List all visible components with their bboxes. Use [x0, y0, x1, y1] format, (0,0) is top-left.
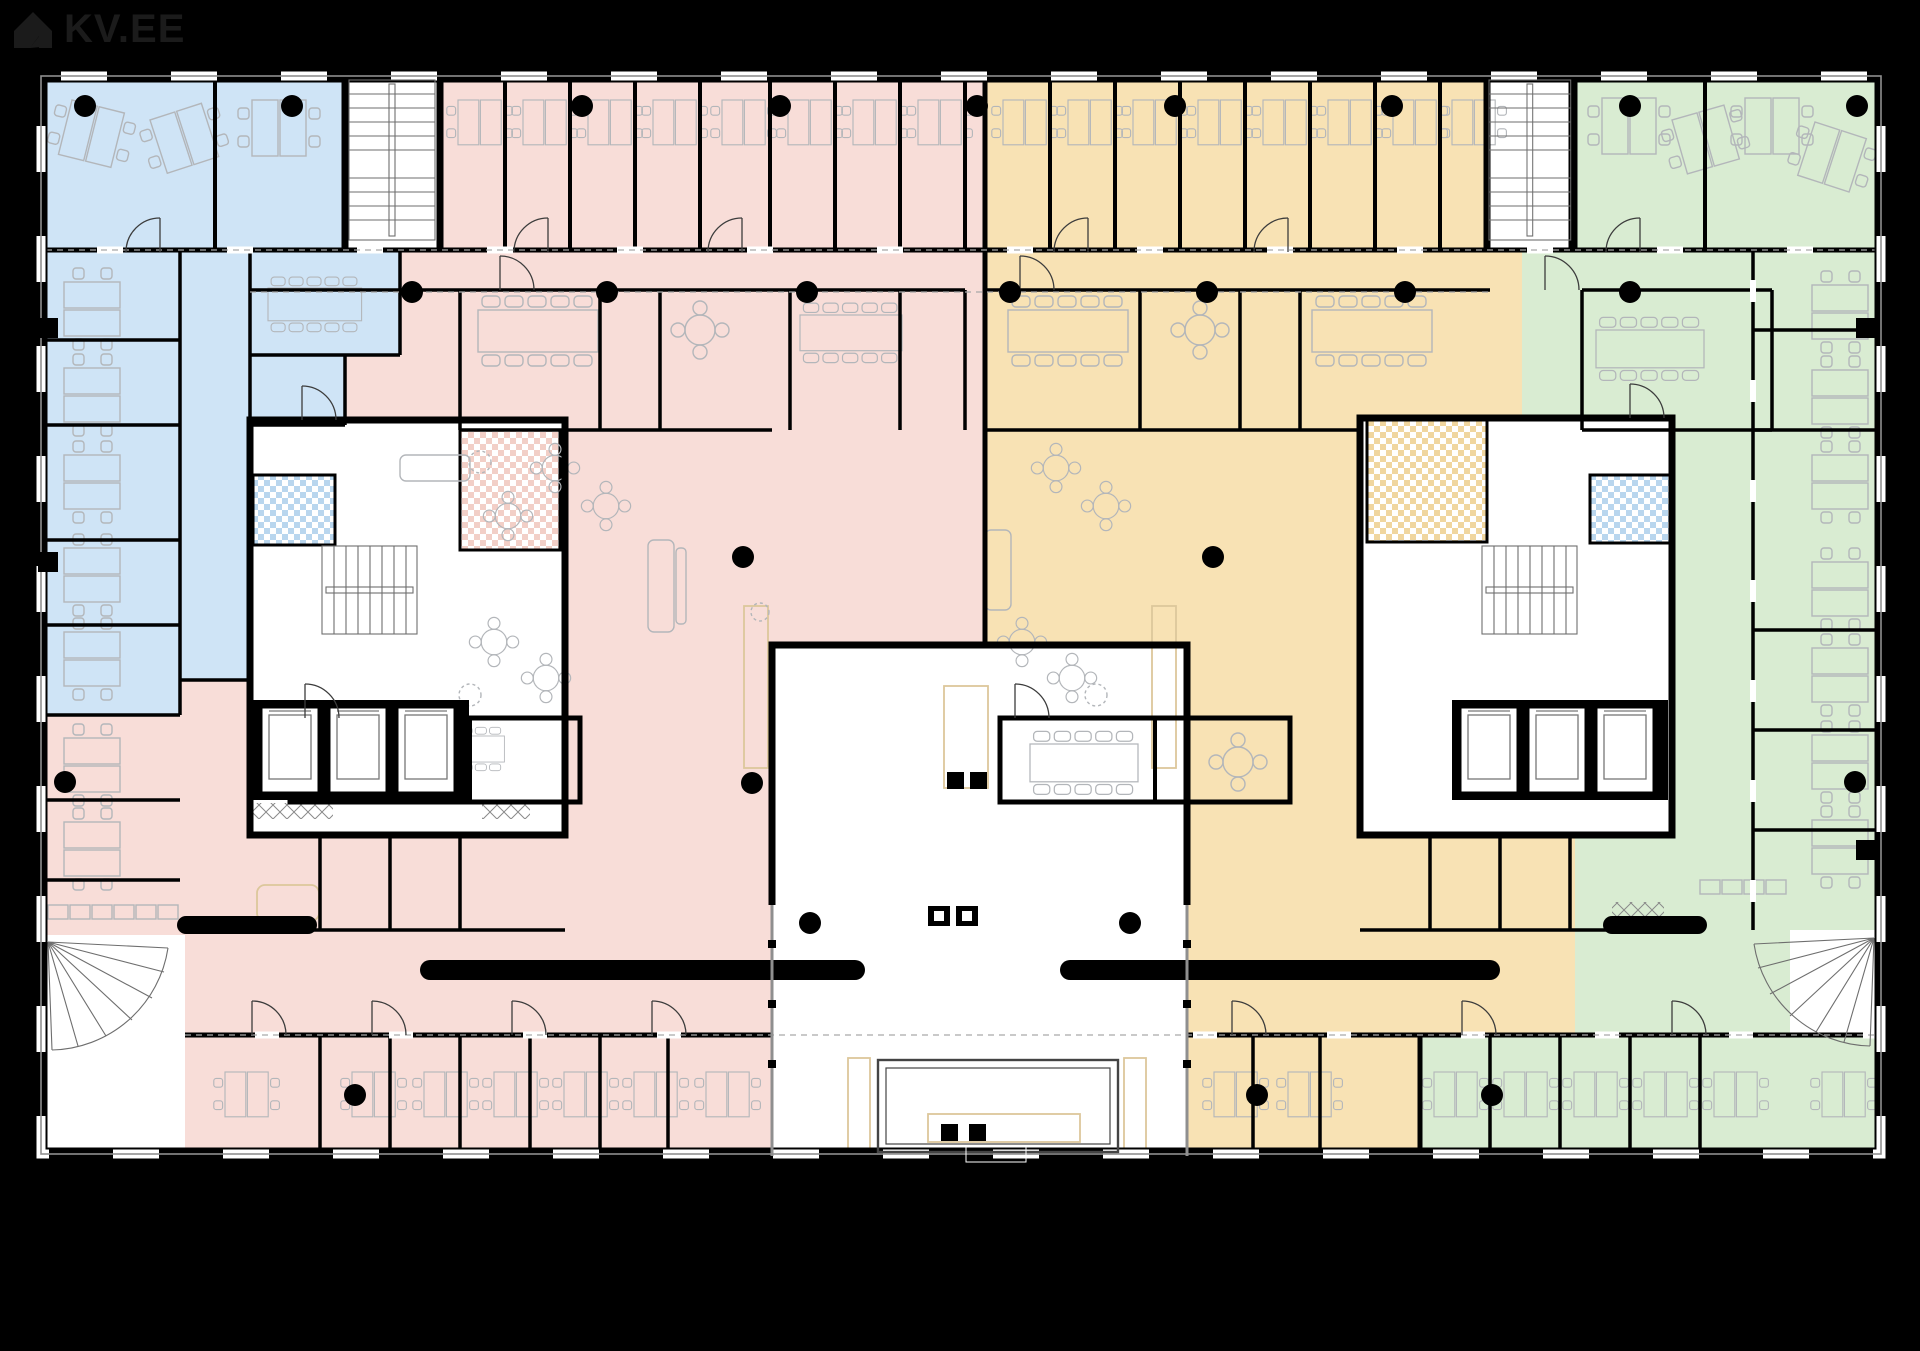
wc-block-east-blue	[1590, 475, 1670, 543]
wc-block-east-orange	[1367, 420, 1487, 542]
kv-logo: KV.EE	[10, 6, 185, 52]
hatch-strip-2	[482, 803, 530, 819]
stair-core-northeast	[1487, 70, 1572, 250]
hatch-strip-3	[1612, 902, 1664, 917]
elevator-bank-east	[1460, 707, 1654, 793]
screenshot-canvas: KV.EE	[0, 0, 1920, 1351]
zone-blue-4	[250, 250, 400, 355]
zone-blue-3	[180, 250, 250, 680]
zone-blue-5	[250, 355, 345, 425]
wc-block-west-blue	[253, 475, 335, 545]
floor-plan	[0, 0, 1920, 1351]
kv-house-icon	[10, 6, 56, 52]
hatch-strip-1	[253, 803, 333, 819]
kv-logo-text: KV.EE	[64, 9, 185, 49]
elevator-bank-west	[261, 707, 455, 793]
zone-green-corridor	[1522, 250, 1575, 430]
wc-block-west-pink	[460, 430, 560, 550]
stair-core-northwest	[345, 70, 440, 250]
